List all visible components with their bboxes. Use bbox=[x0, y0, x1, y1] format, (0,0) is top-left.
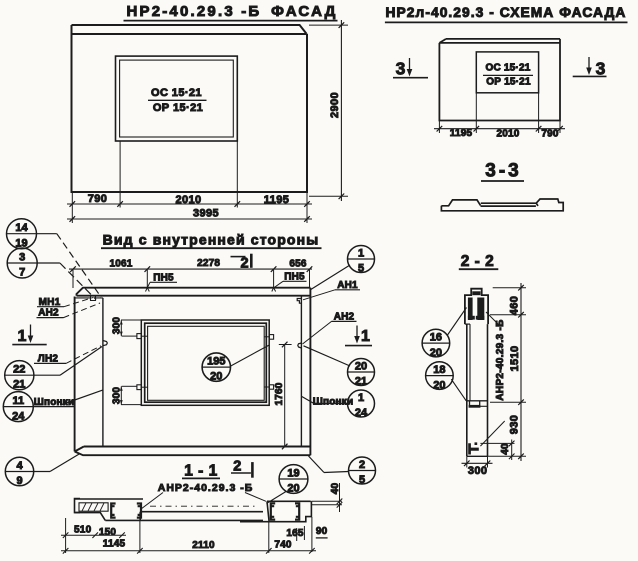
svg-text:5: 5 bbox=[359, 474, 365, 486]
svg-text:3995: 3995 bbox=[193, 208, 219, 220]
svg-text:1: 1 bbox=[358, 392, 364, 404]
svg-text:20: 20 bbox=[430, 347, 442, 359]
svg-text:1061: 1061 bbox=[109, 258, 132, 269]
svg-text:7: 7 bbox=[19, 267, 25, 279]
svg-text:5: 5 bbox=[358, 263, 364, 275]
svg-text:300: 300 bbox=[468, 465, 488, 477]
svg-text:2010: 2010 bbox=[175, 194, 201, 206]
svg-text:790: 790 bbox=[88, 193, 108, 205]
svg-text:2: 2 bbox=[233, 459, 241, 475]
svg-text:24: 24 bbox=[12, 410, 25, 422]
svg-text:2: 2 bbox=[240, 255, 248, 271]
svg-text:20: 20 bbox=[433, 379, 445, 391]
svg-text:20: 20 bbox=[355, 361, 367, 373]
svg-text:1 - 1: 1 - 1 bbox=[184, 463, 218, 480]
svg-text:195: 195 bbox=[207, 356, 225, 368]
svg-text:ОР 15·21: ОР 15·21 bbox=[153, 102, 203, 114]
svg-text:18: 18 bbox=[433, 364, 445, 376]
svg-text:22: 22 bbox=[13, 364, 25, 376]
svg-text:2 - 2: 2 - 2 bbox=[461, 253, 495, 270]
svg-text:510: 510 bbox=[74, 524, 92, 535]
svg-text:АН2: АН2 bbox=[38, 308, 59, 319]
svg-text:40: 40 bbox=[500, 443, 511, 455]
svg-text:300: 300 bbox=[112, 317, 123, 335]
svg-text:3-3: 3-3 bbox=[485, 161, 521, 182]
svg-text:3: 3 bbox=[396, 59, 406, 79]
svg-text:19: 19 bbox=[287, 468, 299, 480]
svg-text:3: 3 bbox=[596, 59, 606, 79]
svg-text:АНР2-40.29.3 -Б: АНР2-40.29.3 -Б bbox=[158, 482, 254, 494]
svg-text:1195: 1195 bbox=[450, 128, 473, 139]
svg-text:НР2-40.29.3 -Б ФАСАД: НР2-40.29.3 -Б ФАСАД bbox=[126, 3, 337, 20]
svg-text:790: 790 bbox=[541, 128, 559, 139]
svg-text:460: 460 bbox=[509, 296, 521, 316]
svg-text:1195: 1195 bbox=[264, 194, 289, 206]
svg-text:165: 165 bbox=[286, 528, 304, 539]
svg-text:ОР 15·21: ОР 15·21 bbox=[486, 76, 531, 87]
svg-text:АНР2-40.29.3 -Б: АНР2-40.29.3 -Б bbox=[495, 319, 506, 400]
svg-text:ЛН2: ЛН2 bbox=[38, 353, 59, 364]
svg-text:21: 21 bbox=[13, 379, 25, 391]
svg-text:150: 150 bbox=[99, 527, 117, 538]
svg-text:1145: 1145 bbox=[103, 538, 126, 549]
svg-text:21: 21 bbox=[355, 376, 367, 388]
svg-text:40: 40 bbox=[330, 483, 341, 495]
svg-text:2010: 2010 bbox=[496, 128, 519, 139]
svg-text:20: 20 bbox=[210, 371, 222, 383]
svg-text:14: 14 bbox=[15, 222, 28, 234]
svg-text:9: 9 bbox=[16, 475, 22, 487]
svg-text:2110: 2110 bbox=[192, 540, 215, 551]
svg-text:90: 90 bbox=[316, 526, 328, 537]
svg-text:1: 1 bbox=[358, 248, 364, 260]
svg-text:1: 1 bbox=[18, 328, 27, 345]
svg-text:3: 3 bbox=[19, 252, 25, 264]
svg-text:300: 300 bbox=[112, 387, 123, 405]
svg-text:1510: 1510 bbox=[509, 345, 521, 371]
svg-text:11: 11 bbox=[12, 395, 24, 407]
svg-text:20: 20 bbox=[287, 483, 299, 495]
svg-text:Вид с внутренней стороны: Вид с внутренней стороны bbox=[103, 232, 320, 248]
svg-text:16: 16 bbox=[430, 332, 442, 344]
svg-text:1760: 1760 bbox=[274, 382, 285, 405]
svg-text:ОС 15·21: ОС 15·21 bbox=[151, 87, 202, 99]
svg-text:656: 656 bbox=[289, 259, 307, 270]
svg-text:24: 24 bbox=[355, 407, 368, 419]
svg-text:НР2л-40.29.3 - СХЕМА ФАСАДА: НР2л-40.29.3 - СХЕМА ФАСАДА bbox=[386, 5, 627, 20]
svg-text:2900: 2900 bbox=[329, 92, 341, 118]
svg-text:930: 930 bbox=[509, 415, 521, 435]
svg-text:ОС 15·21: ОС 15·21 bbox=[486, 63, 531, 74]
svg-text:АН1: АН1 bbox=[337, 280, 358, 291]
svg-text:АН2: АН2 bbox=[334, 311, 355, 322]
svg-text:2: 2 bbox=[359, 459, 365, 471]
svg-text:740: 740 bbox=[274, 539, 292, 550]
svg-text:4: 4 bbox=[16, 460, 23, 472]
svg-text:2278: 2278 bbox=[197, 258, 220, 269]
svg-text:1: 1 bbox=[361, 328, 370, 345]
